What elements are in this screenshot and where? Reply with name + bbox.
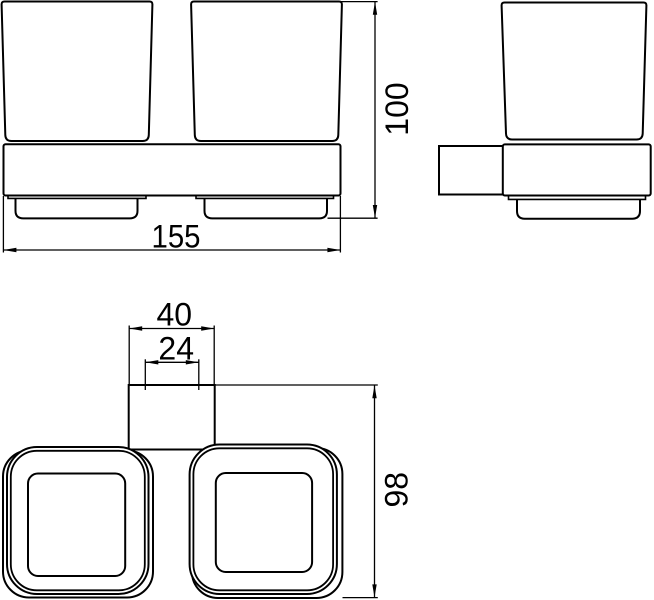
svg-text:40: 40 [157,297,193,333]
svg-text:100: 100 [379,82,415,135]
svg-text:24: 24 [158,330,194,366]
svg-text:155: 155 [152,219,201,255]
svg-text:98: 98 [379,472,415,508]
